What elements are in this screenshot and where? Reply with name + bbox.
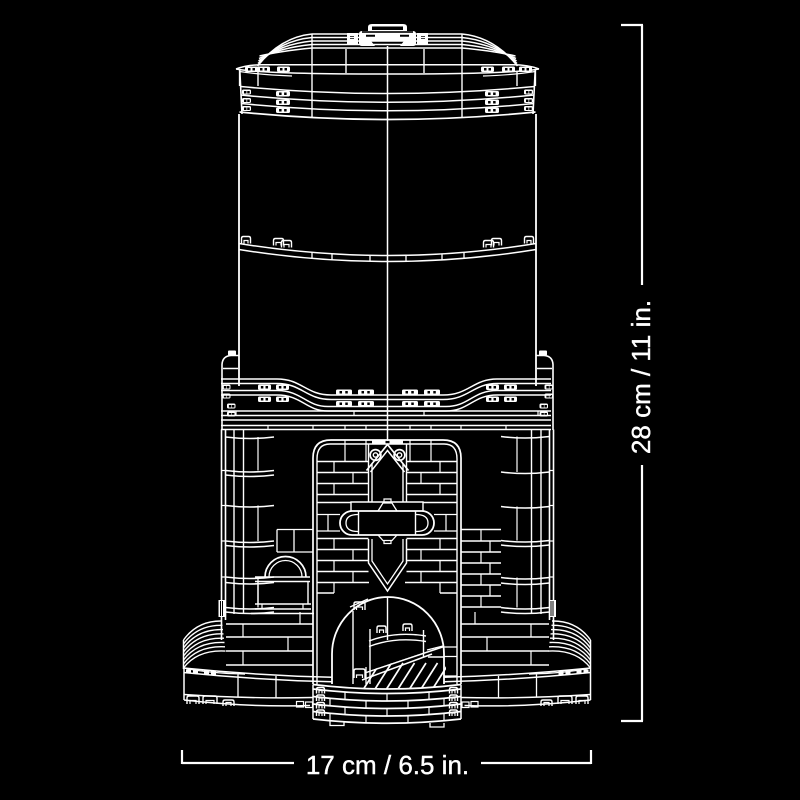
svg-text:17 cm / 6.5 in.: 17 cm / 6.5 in. <box>306 750 469 780</box>
svg-text:28 cm / 11 in.: 28 cm / 11 in. <box>626 300 656 454</box>
